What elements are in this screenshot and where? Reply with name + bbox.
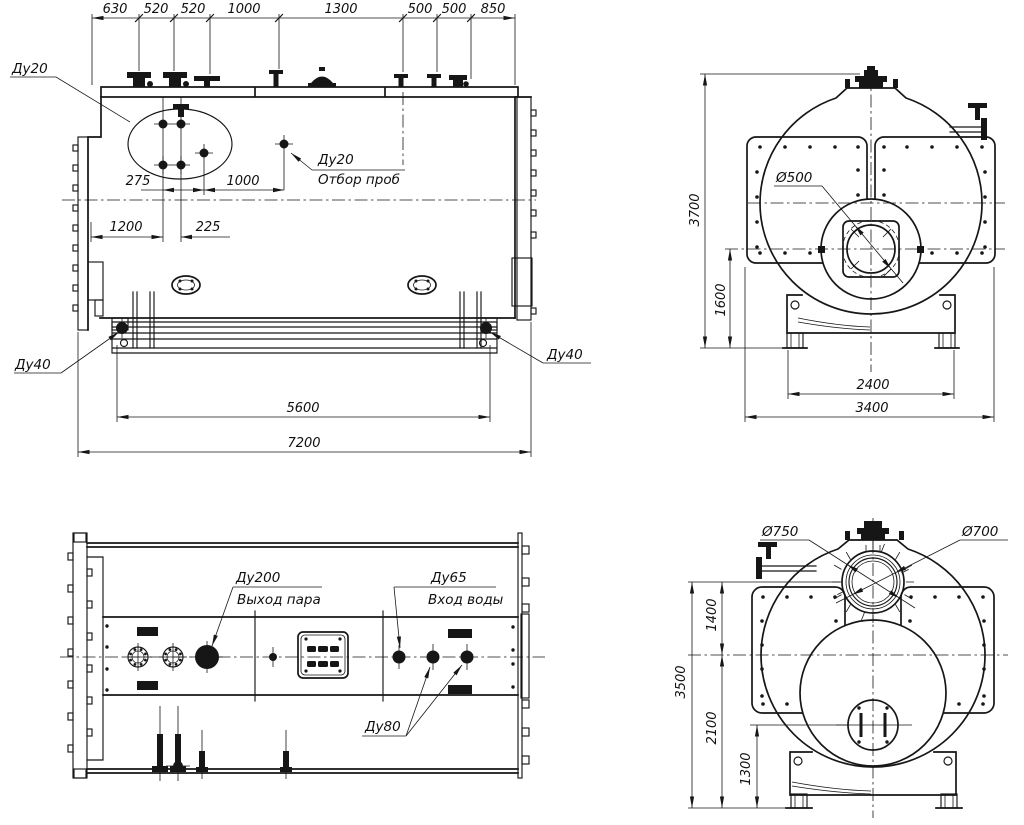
plan-shell-band-shape	[105, 688, 108, 691]
plan-shell-band-shape	[105, 667, 108, 670]
nozzle-group-callout: Ду20	[10, 61, 232, 242]
front-panel-bolt-dots-shape	[983, 220, 987, 224]
sample-nozzle: Ду20 Отбор проб	[275, 135, 405, 190]
dim-3500: 3500	[674, 665, 689, 698]
side-shell-shape	[95, 300, 103, 316]
rear-left-pipe-shape	[766, 547, 771, 559]
slotted-plate	[298, 632, 348, 678]
rear-saddle-shape	[794, 757, 802, 765]
rear-bottom-opening-shape	[885, 740, 888, 743]
front-panel-bolt-dots-shape	[983, 245, 987, 249]
rear-panel-bolt-dots-shape	[982, 643, 986, 647]
rear-view: Ø750 Ø700 3500 1400 2100 1300	[674, 518, 1008, 818]
plan-shell-band-shape	[105, 645, 108, 648]
top-fitting-valves-shape	[427, 74, 441, 78]
rear-shell-shape	[845, 531, 850, 540]
top-fitting-valves-shape	[163, 72, 187, 78]
lug-right-top	[448, 629, 472, 638]
right-flange-tabs-shape	[531, 170, 536, 176]
front-panel-bolt-dots-shape	[955, 251, 959, 255]
front-panel-bolt-dots-shape	[930, 251, 934, 255]
bolted-flange-2	[159, 643, 187, 671]
front-panel-bolt-dots-shape	[808, 145, 812, 149]
du200-steam-outlet-nozzle-shape	[191, 641, 223, 673]
du20-nozzles-shape	[154, 115, 172, 133]
rear-panel-bolt-dots-shape	[761, 702, 765, 706]
top-fitting-valves-shape	[432, 78, 437, 87]
handhole-right-shape	[415, 280, 418, 283]
top-fitting-valves-shape	[308, 83, 336, 87]
front-panel-bolt-dots-shape	[833, 145, 837, 149]
rear-panel-bolt-dots-shape	[933, 595, 937, 599]
rear-left-pipe-shape	[758, 542, 777, 547]
rear-panel-bolt-dots-shape	[957, 595, 961, 599]
right-flange-tabs-shape	[531, 190, 536, 196]
d750-callout-shape	[889, 590, 900, 598]
top-fitting-valves-shape	[147, 81, 153, 87]
du200-label: Ду200	[235, 570, 280, 586]
handhole-right-shape	[427, 288, 430, 291]
plan-shell-band-shape	[105, 624, 108, 627]
rear-panel-bolt-dots-shape	[809, 595, 813, 599]
plan-left-flange-tabs-shape	[87, 569, 92, 576]
lug-right-bottom	[448, 685, 472, 694]
sample-nozzle-shape	[291, 153, 312, 170]
left-flange-tabs	[73, 145, 78, 311]
top-fitting-valves-shape	[194, 76, 220, 81]
left-flange-tabs-shape	[73, 225, 78, 231]
rear-panel-bolt-dots-shape	[761, 595, 765, 599]
dim-5600: 5600	[286, 401, 319, 416]
bolted-flange-1-shape	[140, 663, 143, 666]
plan-shell-band-shape	[511, 648, 514, 651]
bolted-flange-2-shape	[175, 663, 178, 666]
left-flange-tabs-shape	[73, 245, 78, 251]
plan-right-flange-tabs-shape	[522, 604, 529, 612]
dim-3700: 3700	[688, 193, 703, 226]
lug-left-top	[137, 627, 158, 636]
du40-nozzle-right-shape	[490, 332, 543, 363]
top-fitting-valves	[127, 67, 469, 87]
right-flange-tabs-shape	[531, 110, 536, 116]
plan-right-flange-tabs-shape	[522, 728, 529, 736]
dim-3400: 3400	[855, 401, 888, 416]
plan-left-flange-tabs-shape	[68, 745, 73, 752]
dim-225: 225	[196, 220, 221, 235]
front-saddle-shape	[943, 301, 951, 309]
rear-left-pipe	[756, 542, 816, 579]
support-frame-shape	[112, 322, 497, 353]
plan-view: Ду200 Выход пара Ду65 Вход воды Ду80	[60, 533, 545, 781]
rear-panel-bolt-dots-shape	[785, 702, 789, 706]
side-shell	[73, 67, 536, 330]
front-panel-bolt-dots-shape	[983, 170, 987, 174]
dim-275: 275	[126, 174, 151, 189]
left-flange-tabs-shape	[73, 285, 78, 291]
support-frame	[112, 292, 497, 353]
bolted-flange-1-shape	[124, 643, 152, 671]
dim-500-a: 500	[408, 2, 433, 17]
plan-left-flange-tabs-shape	[68, 649, 73, 656]
left-flange-tabs-shape	[73, 265, 78, 271]
slotted-plate-shape	[304, 669, 307, 672]
du200-steam-outlet-nozzle	[191, 641, 223, 673]
front-panel-bolt-dots-shape	[758, 145, 762, 149]
rear-panel-bolt-dots-shape	[981, 595, 985, 599]
sample-label: Отбор проб	[318, 172, 400, 188]
bolted-flange-2-shape	[179, 653, 182, 656]
rear-saddle-shape	[791, 794, 807, 808]
dim-630: 630	[103, 2, 128, 17]
bolted-flange-1-shape	[144, 653, 147, 656]
rear-shell-shape	[899, 531, 904, 540]
front-right-pipe-shape	[975, 108, 980, 120]
plan-shell-band-shape	[511, 625, 514, 628]
d750-callout-shape	[847, 565, 858, 573]
side-dim-275-1000-shape	[163, 188, 174, 192]
handhole-left-shape	[172, 276, 200, 294]
du20-nozzles-shape	[195, 144, 213, 162]
dim-1000: 1000	[226, 174, 259, 189]
lug-left-bottom	[137, 681, 158, 690]
bolted-flange-2-shape	[164, 659, 167, 662]
du40-left-label: Ду40	[14, 357, 51, 373]
top-fitting-valves-shape	[183, 81, 189, 87]
right-flange-tabs-shape	[531, 130, 536, 136]
top-fitting-valves-shape	[319, 67, 325, 71]
plan-shell-band-shape	[103, 617, 518, 695]
slotted-plate-shape	[318, 661, 328, 667]
slotted-plate-shape	[301, 635, 345, 675]
du40-nozzle-left: Ду40	[14, 318, 128, 373]
rear-panel-bolt-dots-shape	[760, 619, 764, 623]
rear-panel-bolt-dots-shape	[760, 667, 764, 671]
sample-nozzle-shape	[275, 135, 293, 190]
du65-water-inlet-nozzle	[393, 645, 406, 669]
plan-right-flange-tabs-shape	[522, 546, 529, 554]
left-flange-tabs-shape	[73, 145, 78, 151]
bolted-flange-2-shape	[175, 648, 178, 651]
side-dim-5600: 5600	[117, 345, 490, 422]
front-panel-bolt-dots-shape	[856, 193, 860, 197]
front-saddle-shape	[798, 318, 870, 330]
handhole-left-shape	[179, 280, 182, 283]
plan-right-flange-tabs-shape	[522, 756, 529, 764]
front-shell-shape	[867, 66, 875, 70]
rear-left-pipe-shape	[762, 566, 816, 571]
bolted-flange-1	[124, 643, 152, 671]
slotted-plate-shape	[330, 646, 339, 652]
handhole-left-shape	[179, 288, 182, 291]
front-view: Ø500 3700 1600 2400 3400	[688, 66, 1005, 422]
dim-1300: 1300	[324, 2, 357, 17]
du20-sample-label: Ду20	[317, 152, 354, 168]
front-panel-bolt-dots-shape	[983, 195, 987, 199]
left-flange-tabs-shape	[73, 185, 78, 191]
bolted-flange-1-shape	[129, 659, 132, 662]
top-fitting-valves-shape	[449, 75, 467, 80]
front-saddle-shape	[787, 333, 803, 348]
dim-1600: 1600	[714, 283, 729, 316]
plan-left-flange-tabs-shape	[68, 617, 73, 624]
boiler-technical-drawing-page: 630 520 520 1000 1300 500 500 850	[0, 0, 1024, 825]
drain-pipes-shape	[157, 734, 163, 770]
front-panel-bolt-dots-shape	[755, 170, 759, 174]
front-dim-1600: 1600	[714, 249, 730, 348]
plan-shell-outline-shape	[74, 533, 86, 542]
bolted-flange-1-shape	[134, 663, 137, 666]
du65-label: Ду65	[430, 570, 467, 586]
rear-saddle-shape	[941, 794, 957, 808]
front-panel-bolt-dots-shape	[882, 145, 886, 149]
plan-shell-outline-shape	[74, 769, 86, 778]
du80-callout-shape	[406, 667, 430, 736]
plan-shell-band-shape	[511, 662, 514, 665]
right-flange-tabs-shape	[531, 210, 536, 216]
d700-callout-shape	[836, 540, 1008, 603]
front-panel-bolt-dots-shape	[980, 145, 984, 149]
du80-callout: Ду80	[362, 665, 462, 736]
top-fitting-valves-shape	[463, 81, 469, 87]
handhole-left	[172, 276, 200, 294]
slotted-plate-shape	[330, 661, 339, 667]
rear-panel-bolt-dots-shape	[760, 694, 764, 698]
rear-bottom-opening-shape	[857, 740, 860, 743]
plan-left-flange-tabs-shape	[87, 729, 92, 736]
handhole-right-shape	[427, 280, 430, 283]
side-dim-275-1000-shape	[193, 188, 204, 192]
slotted-plate-shape	[307, 661, 316, 667]
du20-label: Ду20	[11, 61, 48, 77]
front-panel-bolt-dots-shape	[955, 145, 959, 149]
front-panel-bolt-dots-shape	[856, 168, 860, 172]
right-flange-tabs-shape	[531, 150, 536, 156]
rear-saddle-shape	[944, 757, 952, 765]
dim-7200: 7200	[287, 436, 320, 451]
left-flange-tabs-shape	[73, 165, 78, 171]
rear-bottom-opening-shape	[885, 706, 888, 709]
side-dim-275-1000: 275 1000	[126, 174, 284, 192]
side-shell-shape	[88, 97, 101, 330]
steam-out-label: Выход пара	[237, 592, 321, 608]
right-flange-tabs-shape	[531, 232, 536, 238]
handhole-right	[408, 276, 436, 294]
bolted-flange-1-shape	[134, 648, 137, 651]
rear-left-pipe-shape	[756, 557, 762, 579]
plan-left-flange-tabs-shape	[87, 665, 92, 672]
water-in-label: Вход воды	[428, 592, 504, 608]
front-shell-shape	[893, 79, 898, 88]
support-frame-shape	[133, 292, 481, 348]
plan-shell-outline-shape	[73, 533, 87, 778]
dim-500-b: 500	[442, 2, 467, 17]
bolted-flange-2-shape	[169, 648, 172, 651]
plan-fittings	[124, 627, 474, 694]
du80-label: Ду80	[364, 719, 401, 735]
bolted-flange-1-shape	[140, 648, 143, 651]
side-shell-shape	[101, 87, 518, 97]
side-dim-7200: 7200	[78, 322, 531, 457]
du80-callout-shape	[406, 665, 462, 736]
d700-label: Ø700	[961, 524, 998, 540]
rear-panel-bolt-dots-shape	[760, 643, 764, 647]
plan-right-flange-tabs-shape	[522, 578, 529, 586]
front-panel-bolt-dots-shape	[808, 251, 812, 255]
handhole-left-shape	[191, 280, 194, 283]
front-panel-bolt-dots-shape	[758, 251, 762, 255]
front-panel-bolt-dots-shape	[980, 251, 984, 255]
side-shell-shape	[78, 137, 88, 330]
drain-pipes-shape	[152, 766, 168, 772]
top-fitting-valves-shape	[394, 74, 408, 78]
dim-2100: 2100	[705, 711, 720, 744]
front-panel-bolt-dots-shape	[755, 245, 759, 249]
rear-saddle-shape	[795, 794, 953, 808]
dim-1300: 1300	[739, 752, 754, 785]
handhole-left-shape	[191, 288, 194, 291]
slotted-plate-shape	[338, 669, 341, 672]
dim-1000-top: 1000	[227, 2, 260, 17]
plan-left-flange-tabs-shape	[87, 601, 92, 608]
furnace-door-shape	[818, 246, 825, 253]
nozzle-group-callout-shape	[10, 77, 130, 122]
front-right-pipe-shape	[968, 103, 987, 108]
drain-pipes-shape	[196, 767, 208, 772]
right-flange-tabs-shape	[531, 308, 536, 314]
side-shell-shape	[517, 97, 531, 320]
bolted-flange-2-shape	[159, 643, 187, 671]
front-right-pipe	[950, 103, 987, 140]
rear-panel-bolt-dots-shape	[982, 694, 986, 698]
rear-panel-bolt-dots-shape	[957, 702, 961, 706]
left-flange-tabs-shape	[73, 205, 78, 211]
du20-nozzles-shape	[172, 115, 190, 133]
rear-panel-bolt-dots-shape	[982, 619, 986, 623]
plan-right-flange-tabs	[522, 546, 529, 764]
top-fitting-valves-shape	[127, 72, 151, 78]
drain-pipes-shape	[280, 767, 292, 772]
du20-nozzles-shape	[173, 104, 189, 109]
left-flange-tabs-shape	[73, 305, 78, 311]
side-dim-275-1000-shape	[204, 188, 215, 192]
side-dim-275-1000-shape	[273, 188, 284, 192]
side-view: 630 520 520 1000 1300 500 500 850	[10, 2, 591, 457]
support-frame-shape	[121, 340, 128, 347]
plan-shell-band-shape	[511, 685, 514, 688]
front-panel-bolt-dots-shape	[882, 168, 886, 172]
top-fitting-valves-shape	[453, 80, 463, 87]
bolted-flange-1-shape	[129, 653, 132, 656]
top-fitting-valves-shape	[204, 81, 210, 87]
front-panel-bolt-dots-shape	[856, 145, 860, 149]
front-panel-bolt-dots-shape	[755, 195, 759, 199]
boiler-drawing: 630 520 520 1000 1300 500 500 850	[0, 0, 1024, 825]
dim-1200: 1200	[109, 220, 142, 235]
dim-520-b: 520	[181, 2, 206, 17]
front-panel-bolt-dots-shape	[783, 145, 787, 149]
slotted-plate-shape	[338, 637, 341, 640]
side-shell-shape	[88, 262, 103, 300]
rear-saddle-shape	[792, 782, 871, 794]
top-fitting-valves-shape	[274, 74, 279, 87]
plan-left-flange-tabs-shape	[68, 553, 73, 560]
du40-right-label: Ду40	[546, 347, 583, 363]
rear-panel-bolt-dots-shape	[982, 667, 986, 671]
front-saddle-shape	[791, 301, 799, 309]
bolted-flange-1-shape	[144, 659, 147, 662]
plan-right-flange-tabs-shape	[522, 700, 529, 708]
plan-left-flange-tabs-shape	[68, 681, 73, 688]
side-dim-1200-225: 1200 225	[91, 220, 230, 242]
front-saddle-shape	[939, 333, 955, 348]
front-panel-bolt-dots-shape	[905, 145, 909, 149]
slotted-plate-shape	[318, 646, 328, 652]
top-fitting-valves-shape	[311, 77, 333, 84]
dim-1400: 1400	[705, 598, 720, 631]
side-top-chain-dimension: 630 520 520 1000 1300 500 500 850	[92, 2, 515, 85]
plan-left-flange-tabs-shape	[87, 697, 92, 704]
rear-panel-bolt-dots-shape	[981, 702, 985, 706]
top-fitting-valves-shape	[169, 78, 181, 87]
du20-nozzles-shape	[178, 109, 184, 117]
plan-left-flange-tabs-shape	[68, 713, 73, 720]
front-dim-2400: 2400	[788, 350, 954, 399]
rear-panel-bolt-dots-shape	[785, 595, 789, 599]
bolted-flange-2-shape	[169, 663, 172, 666]
front-panel-bolt-dots-shape	[783, 251, 787, 255]
bolted-flange-2-shape	[164, 653, 167, 656]
handhole-right-shape	[408, 276, 436, 294]
du40-nozzle-left-shape	[61, 332, 119, 373]
rear-panel-bolt-dots-shape	[834, 619, 838, 623]
rear-bottom-opening-shape	[857, 706, 860, 709]
front-panel-bolt-dots-shape	[930, 145, 934, 149]
side-dim-1200-225-shape	[181, 235, 192, 239]
plan-left-flange-tabs-shape	[68, 585, 73, 592]
slotted-plate-shape	[307, 646, 316, 652]
top-fitting-valves-shape	[399, 78, 404, 87]
top-fitting-valves-shape	[133, 78, 145, 87]
handhole-right-shape	[415, 288, 418, 291]
dim-2400: 2400	[856, 378, 889, 393]
side-top-chain-dimension-shape	[92, 14, 515, 85]
rear-panel-bolt-dots-shape	[908, 619, 912, 623]
front-panel-bolt-dots-shape	[882, 193, 886, 197]
furnace-door-shape	[917, 246, 924, 253]
dim-850: 850	[481, 2, 506, 17]
dim-520-a: 520	[144, 2, 169, 17]
front-panel-bolt-dots-shape	[755, 220, 759, 224]
plan-left-flange-tabs	[68, 553, 92, 752]
bolted-flange-2-shape	[179, 659, 182, 662]
slotted-plate-shape	[304, 637, 307, 640]
d750-label: Ø750	[761, 524, 798, 540]
plan-left-flange-tabs-shape	[87, 633, 92, 640]
front-shell-shape	[845, 79, 850, 88]
d500-label: Ø500	[775, 170, 812, 186]
top-fitting-valves-shape	[269, 70, 283, 74]
